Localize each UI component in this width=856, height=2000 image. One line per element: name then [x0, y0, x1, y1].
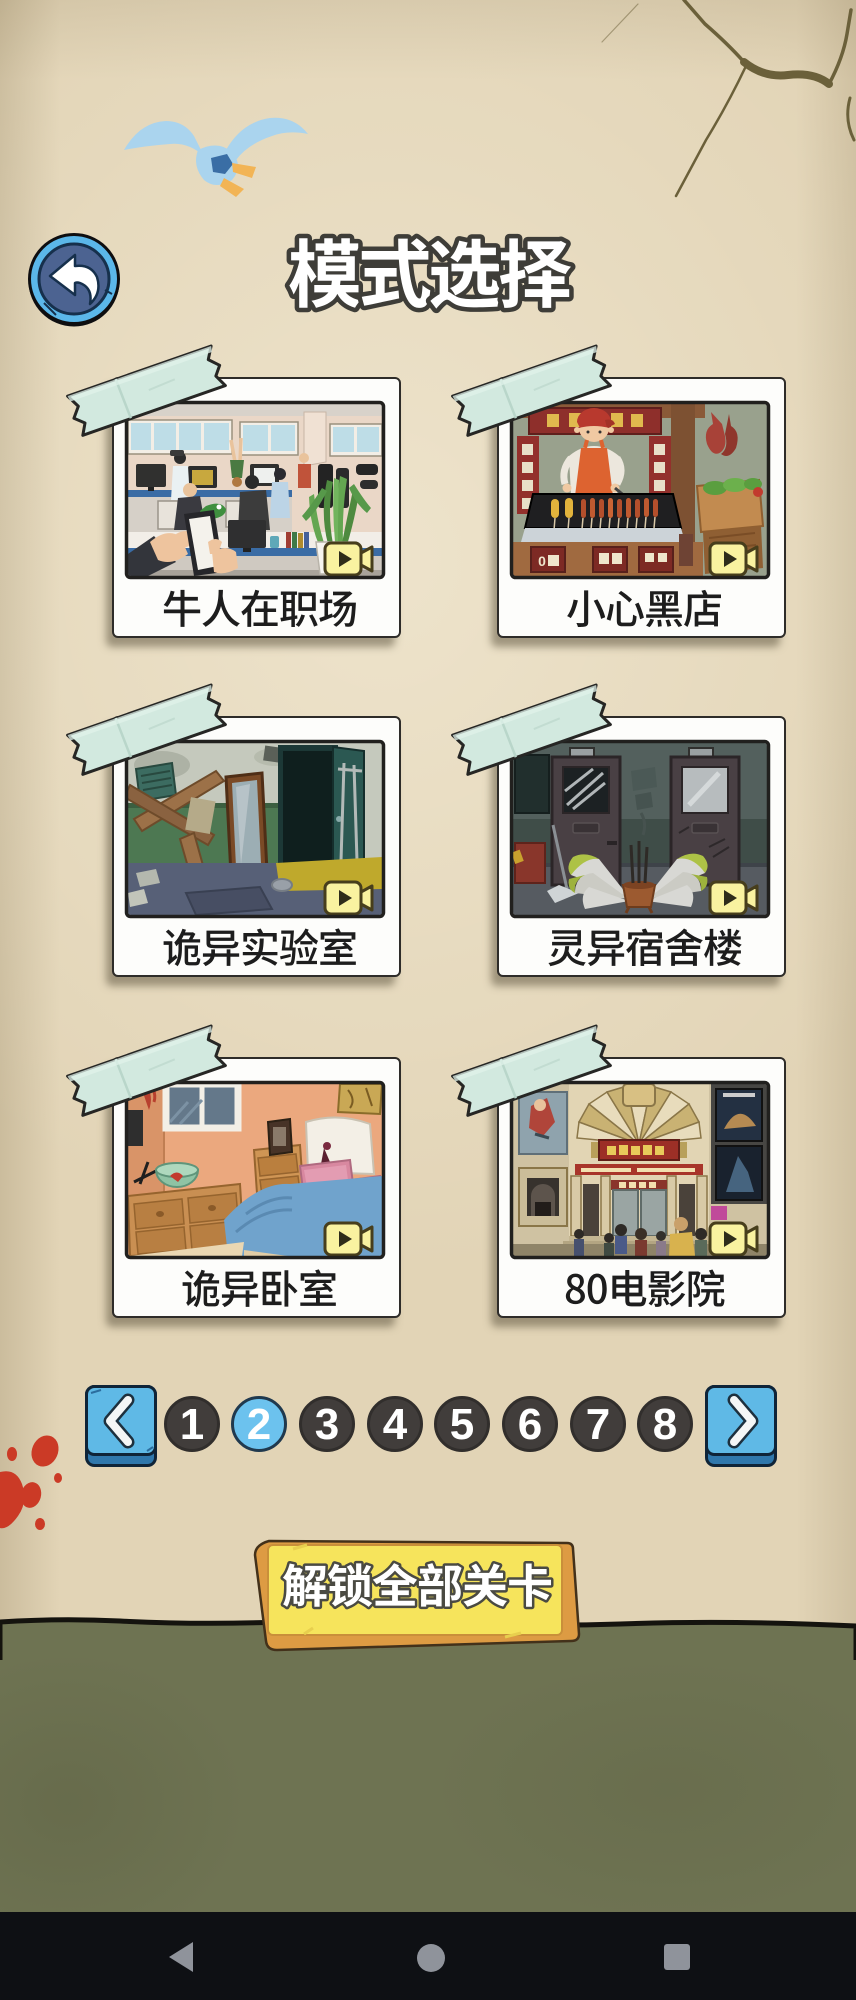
svg-text:0: 0 [538, 553, 546, 569]
